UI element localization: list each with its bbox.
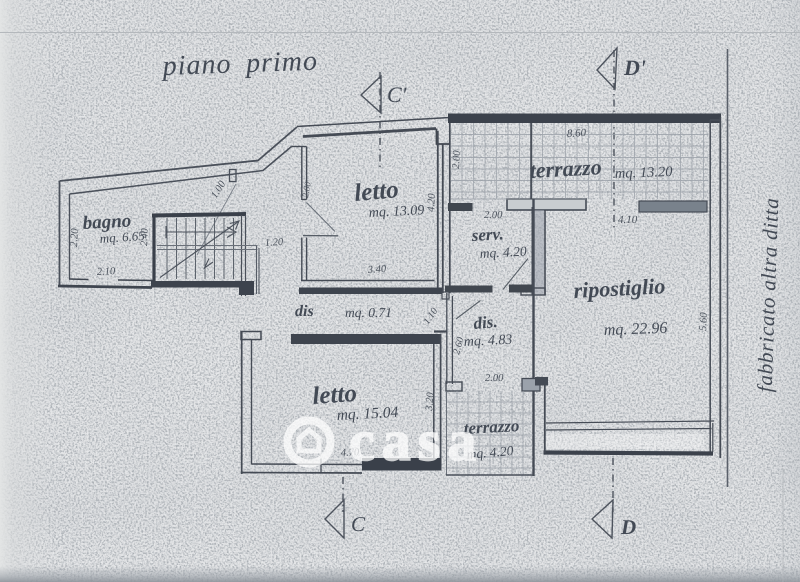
svg-text:serv.: serv. <box>470 224 504 245</box>
svg-text:8.60: 8.60 <box>567 127 587 140</box>
svg-text:mq. 0.71: mq. 0.71 <box>345 305 392 320</box>
svg-text:4.10: 4.10 <box>618 214 638 226</box>
svg-text:C': C' <box>387 82 407 107</box>
svg-text:1.20: 1.20 <box>264 237 284 249</box>
svg-text:mq. 4.20: mq. 4.20 <box>479 244 527 261</box>
svg-text:3.40: 3.40 <box>366 264 387 276</box>
svg-text:2.00: 2.00 <box>451 149 463 169</box>
svg-text:letto: letto <box>353 176 400 207</box>
svg-text:2.10: 2.10 <box>97 266 117 278</box>
svg-text:dis: dis <box>295 303 314 320</box>
svg-text:casa: casa <box>349 408 483 473</box>
svg-text:mq. 4.83: mq. 4.83 <box>463 332 512 350</box>
svg-text:mq. 13.20: mq. 13.20 <box>615 164 674 182</box>
svg-text:4.20: 4.20 <box>426 192 438 212</box>
svg-text:2.20: 2.20 <box>69 227 81 247</box>
svg-text:C: C <box>351 512 366 536</box>
svg-text:D': D' <box>623 55 646 80</box>
svg-text:mq. 13.09: mq. 13.09 <box>368 203 424 221</box>
svg-text:piano primo: piano primo <box>160 46 318 82</box>
svg-text:2.40: 2.40 <box>139 228 151 246</box>
svg-text:D: D <box>620 515 636 539</box>
svg-text:ripostiglio: ripostiglio <box>573 273 666 303</box>
svg-text:5.60: 5.60 <box>698 311 710 331</box>
svg-text:2.00: 2.00 <box>485 373 504 384</box>
svg-text:terrazzo: terrazzo <box>529 154 602 183</box>
svg-text:mq. 22.96: mq. 22.96 <box>604 320 668 339</box>
svg-text:dis.: dis. <box>473 312 499 333</box>
svg-text:2.00: 2.00 <box>484 210 503 221</box>
